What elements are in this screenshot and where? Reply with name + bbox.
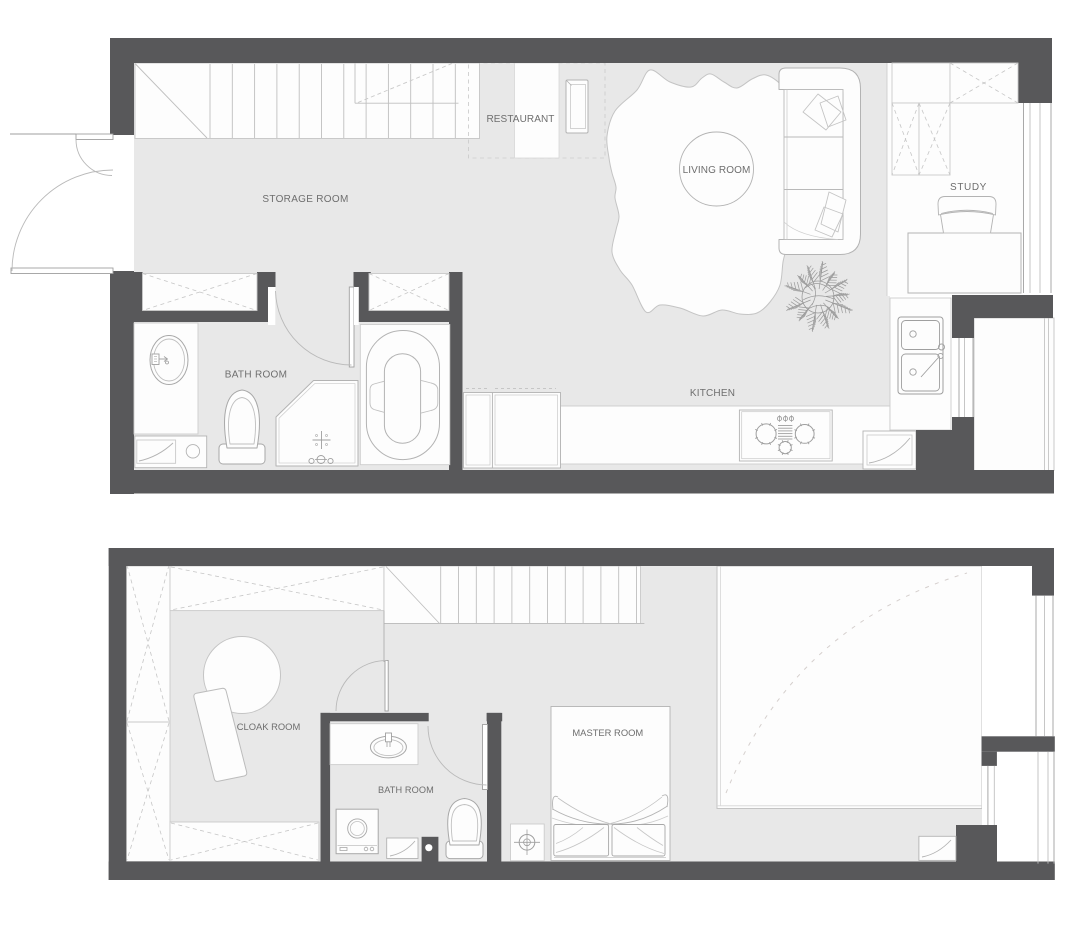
- svg-text:BATH ROOM: BATH ROOM: [225, 370, 288, 381]
- svg-text:MASTER ROOM: MASTER ROOM: [572, 727, 643, 738]
- svg-text:KITCHEN: KITCHEN: [690, 388, 735, 399]
- svg-text:BATH ROOM: BATH ROOM: [378, 785, 434, 795]
- svg-text:RESTAURANT: RESTAURANT: [486, 114, 554, 125]
- svg-text:CLOAK ROOM: CLOAK ROOM: [237, 721, 301, 732]
- svg-text:STORAGE ROOM: STORAGE ROOM: [262, 194, 348, 205]
- svg-text:STUDY: STUDY: [950, 182, 987, 193]
- svg-text:LIVING ROOM: LIVING ROOM: [683, 165, 751, 176]
